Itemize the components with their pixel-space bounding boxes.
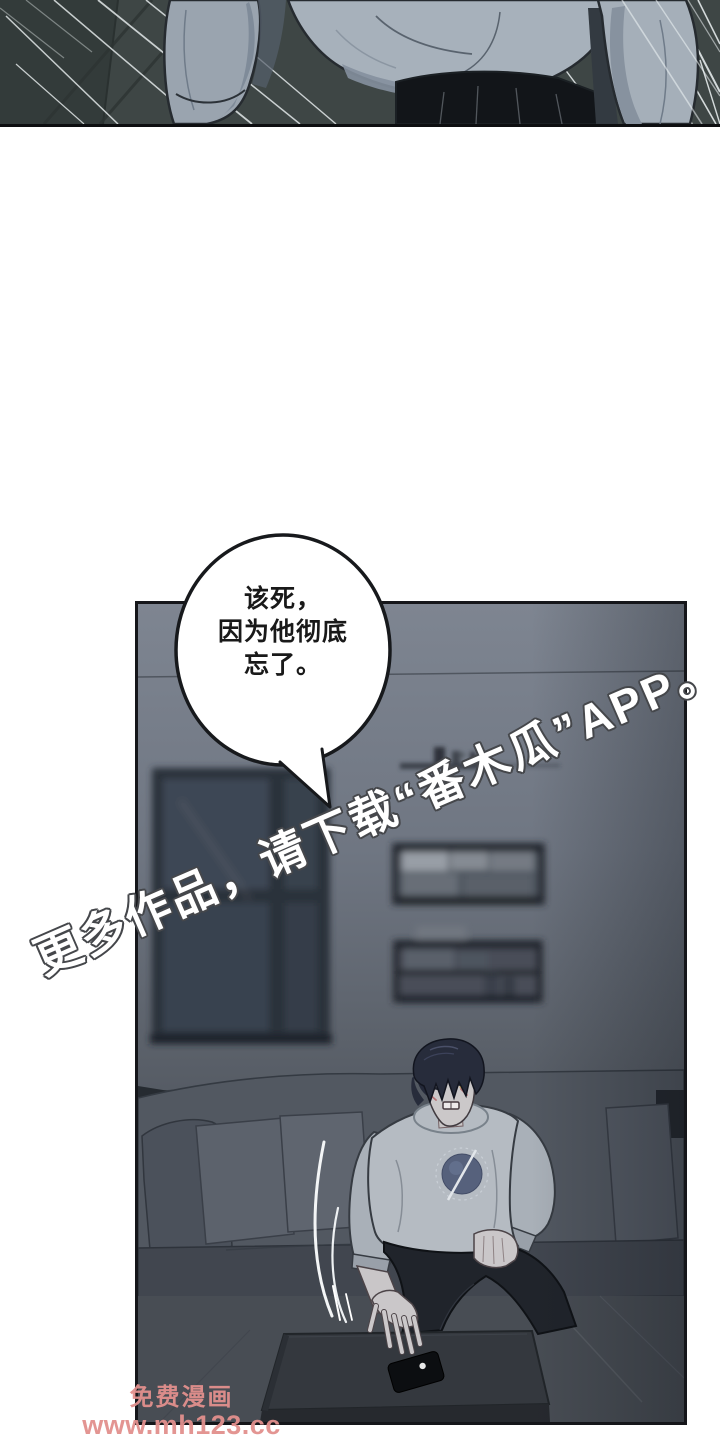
watermark-site: 免费漫画 www.mh123.cc bbox=[74, 1385, 289, 1439]
watermark-site-name: 免费漫画 bbox=[74, 1385, 289, 1411]
comic-page: 该死， 因为他彻底 忘了。 更多作品，请下载“番木瓜”APP。 免费漫画 www… bbox=[0, 0, 720, 1440]
right-arm bbox=[588, 0, 698, 124]
bubble-line: 该死， bbox=[193, 583, 373, 616]
closeup-figure-art bbox=[0, 0, 720, 124]
watermark-site-url: www.mh123.cc bbox=[74, 1411, 289, 1439]
bubble-line: 忘了。 bbox=[193, 649, 373, 682]
speech-bubble-text: 该死， 因为他彻底 忘了。 bbox=[193, 583, 373, 682]
bubble-line: 因为他彻底 bbox=[193, 616, 373, 649]
panel-closeup bbox=[0, 0, 720, 127]
